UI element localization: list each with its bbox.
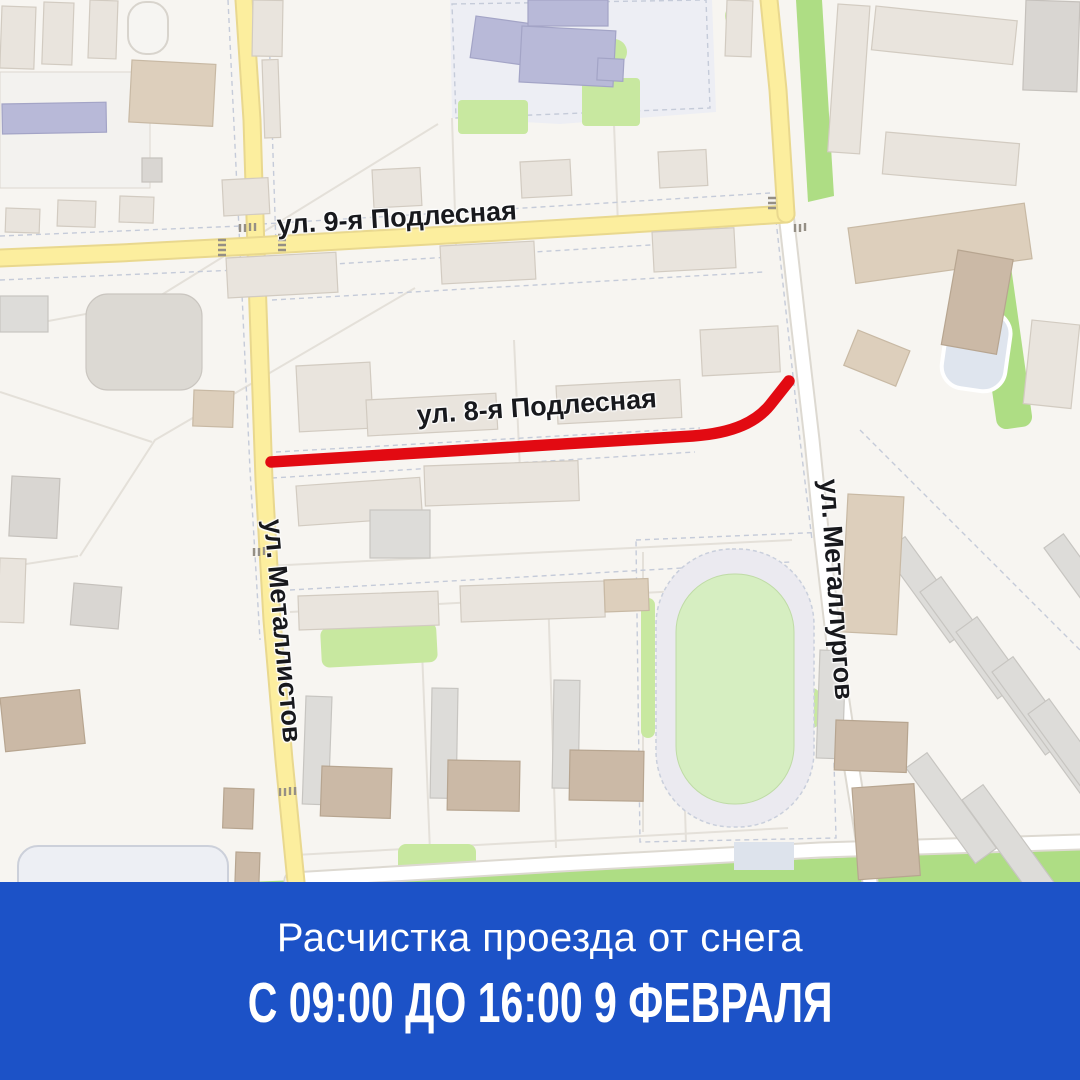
- announcement-banner: Расчистка проезда от снега С 09:00 ДО 16…: [0, 882, 1080, 1080]
- banner-subtitle: Расчистка проезда от снега: [277, 916, 803, 960]
- stadium: [656, 549, 814, 827]
- small-loop-road: [128, 2, 168, 54]
- banner-title-schedule: С 09:00 ДО 16:00 9 ФЕВРАЛЯ: [248, 972, 833, 1035]
- turnaround-loop: [18, 846, 228, 882]
- map-canvas: ул. 9-я Подлесная ул. 8-я Подлесная ул. …: [0, 0, 1080, 882]
- map-graphic: [0, 0, 1080, 882]
- snow-clearing-announcement-poster: ул. 9-я Подлесная ул. 8-я Подлесная ул. …: [0, 0, 1080, 1080]
